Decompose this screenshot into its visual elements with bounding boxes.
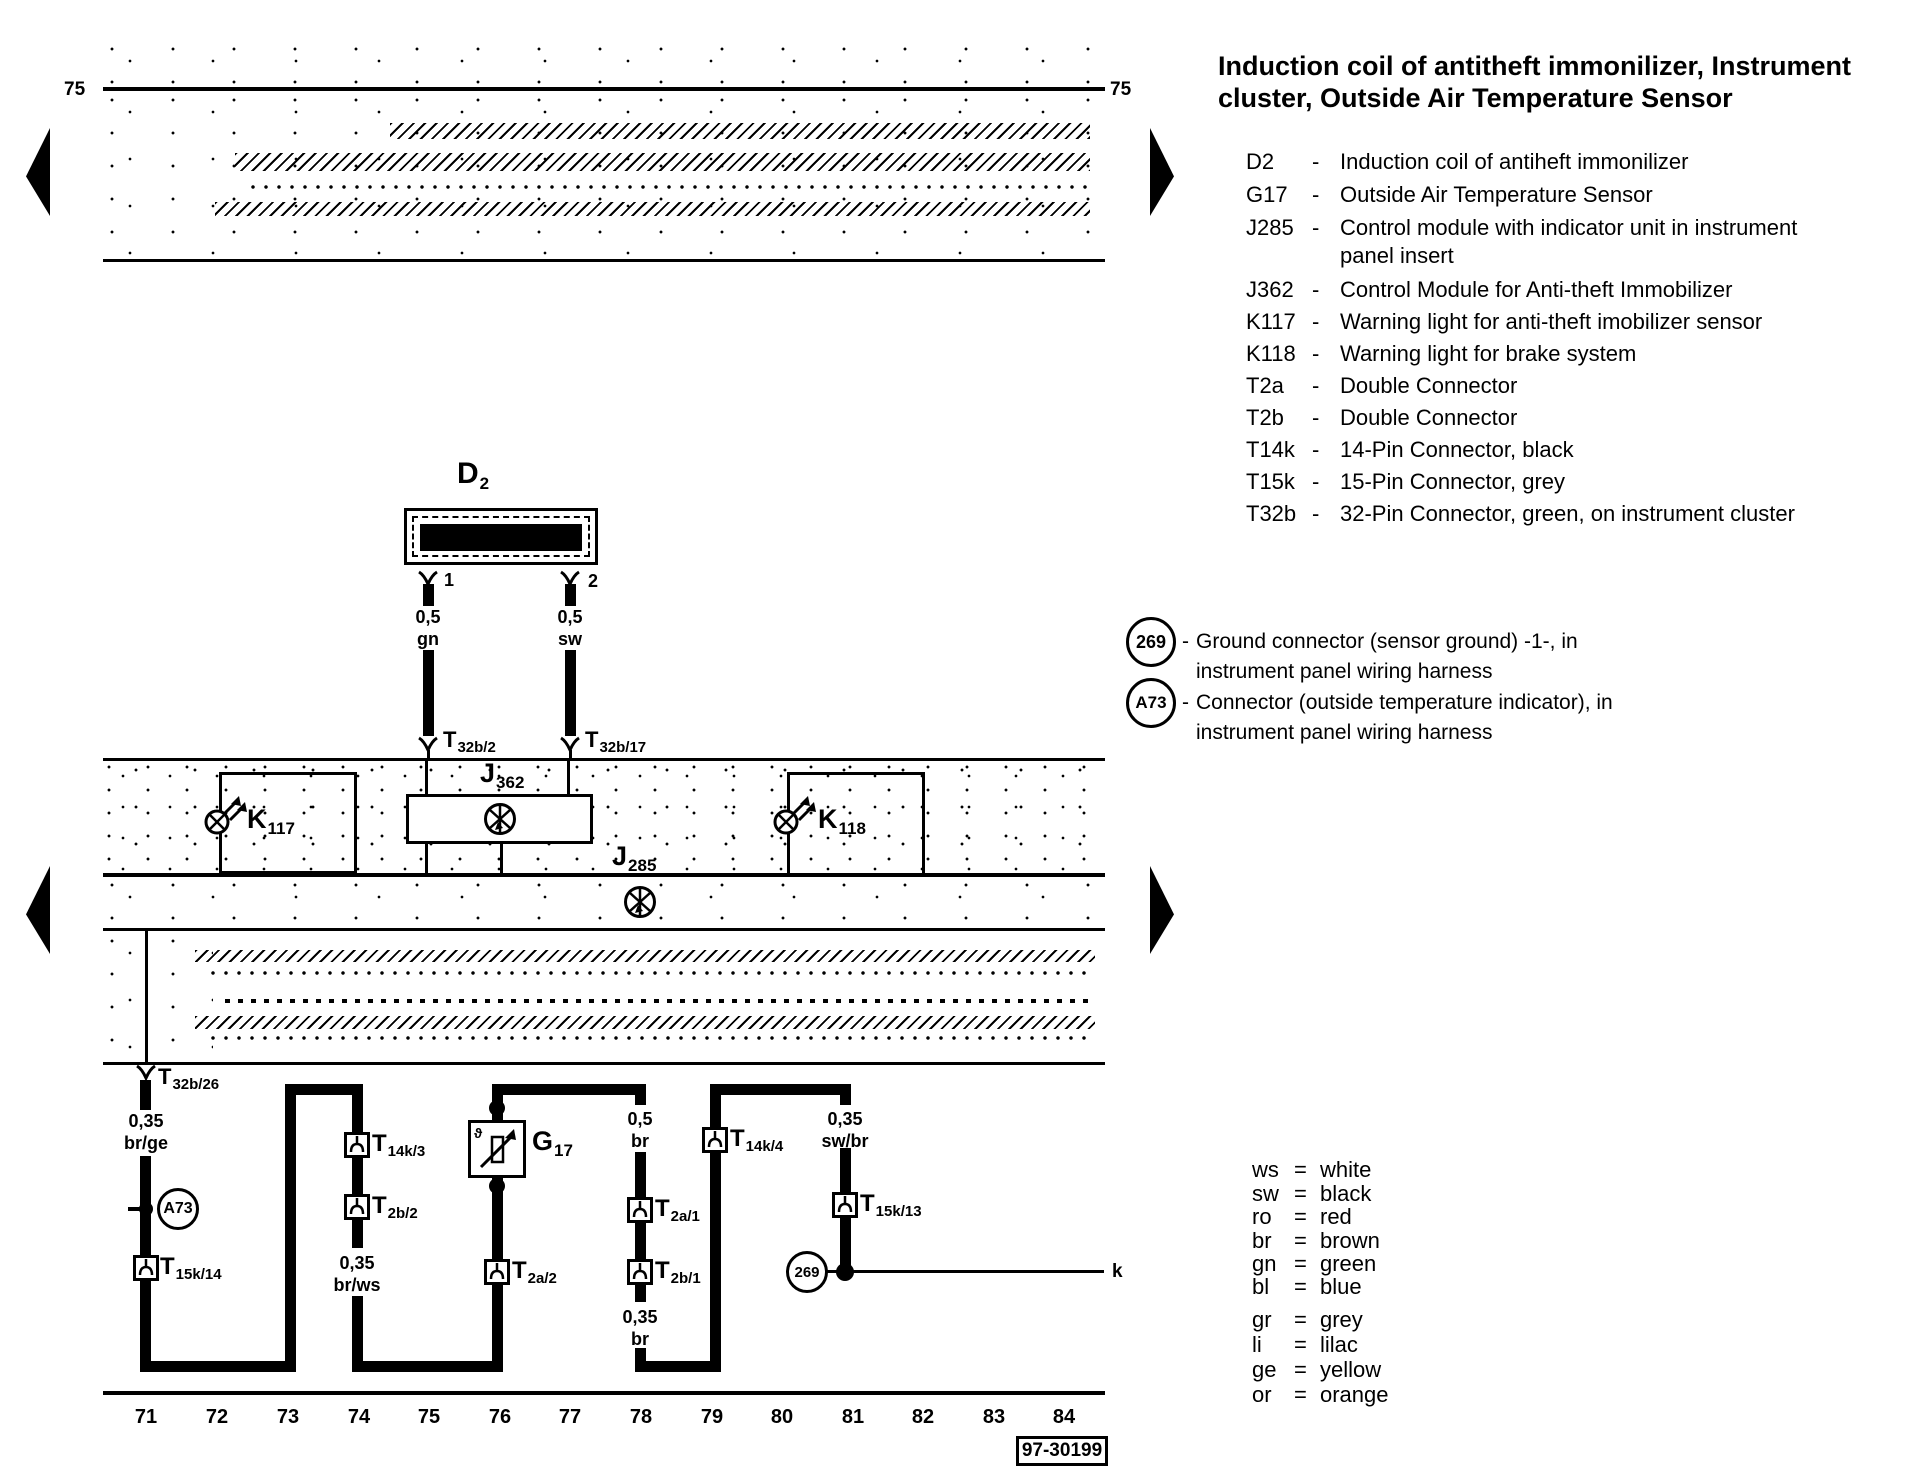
wire-spec-swbr: 0,35 sw/br <box>807 1108 883 1152</box>
pin-number-1: 1 <box>444 571 454 589</box>
connector-label-t2b1: T2b/1 <box>655 1259 701 1283</box>
page-arrow-right-middle <box>1150 866 1174 954</box>
connector-t2b2 <box>344 1194 370 1220</box>
connector-label-t2a1: T2a/1 <box>655 1197 700 1221</box>
connector-t14k3 <box>344 1132 370 1158</box>
connector-t2a1 <box>627 1197 653 1223</box>
wire-spec-br05: 0,5 br <box>602 1108 678 1152</box>
control-module-k-icon <box>622 884 658 920</box>
connector-label-t2b2: T2b/2 <box>372 1194 418 1218</box>
legend-code: T32b <box>1246 501 1312 527</box>
legend-desc: 15-Pin Connector, grey <box>1340 469 1565 494</box>
wire-end-label-k: k <box>1112 1262 1123 1281</box>
stipple-row <box>195 1016 1095 1029</box>
track-number: 75 <box>407 1406 451 1429</box>
connector-label-t2a2: T2a/2 <box>512 1259 557 1283</box>
wire-into-j362 <box>425 761 428 795</box>
connector-ref-a73: A73 <box>157 1188 199 1230</box>
color-code-or: or=orange <box>1252 1382 1389 1408</box>
connector-label-t32b17: T32b/17 <box>585 729 646 751</box>
legend-dash: - <box>1312 277 1340 303</box>
legend-item-j285: J285-Control module with indicator unit … <box>1246 215 1797 241</box>
legend-dash: - <box>1312 215 1340 241</box>
legend-code: T14k <box>1246 437 1312 463</box>
legend-dash: - <box>1312 501 1340 527</box>
legend-code: T2b <box>1246 405 1312 431</box>
wire-spec-br035: 0,35 br <box>602 1306 678 1350</box>
wire-spec-brws: 0,35 br/ws <box>319 1252 395 1296</box>
bottom-rail-line <box>103 1391 1105 1395</box>
legend-item-t32b: T32b-32-Pin Connector, green, on instrum… <box>1246 501 1795 527</box>
legend-dash: - <box>1312 469 1340 495</box>
wire-d2-pin1 <box>423 584 434 606</box>
d2-coil-bar <box>420 524 582 551</box>
plug-icon <box>347 1135 367 1155</box>
stipple-row <box>225 999 1095 1003</box>
note-dash: - <box>1182 691 1189 715</box>
cluster-band-top-line <box>103 758 1105 761</box>
wire-leg <box>352 1296 363 1372</box>
page-arrow-left-middle <box>26 866 50 954</box>
plug-icon <box>630 1200 650 1220</box>
legend-dash: - <box>1312 309 1340 335</box>
track-number: 83 <box>972 1406 1016 1429</box>
stipple-row <box>210 1035 1095 1042</box>
wire-leg <box>840 1084 851 1105</box>
plug-icon <box>136 1258 156 1278</box>
legend-desc: Double Connector <box>1340 373 1517 398</box>
stipple-above-rail <box>103 42 1105 86</box>
color-code-li: li=lilac <box>1252 1332 1358 1358</box>
wire-leg <box>635 1348 646 1372</box>
plug-icon <box>487 1262 507 1282</box>
component-label-d2: D2 <box>457 459 489 489</box>
legend-dash: - <box>1312 341 1340 367</box>
wire-bottom-bar <box>140 1361 296 1372</box>
component-label-j362: J362 <box>480 760 524 787</box>
track-number: 81 <box>831 1406 875 1429</box>
rail-label-75-left: 75 <box>64 80 85 99</box>
g17-box: ϑ <box>468 1120 526 1178</box>
legend-desc: Warning light for brake system <box>1340 341 1636 366</box>
connector-t14k4 <box>702 1127 728 1153</box>
wire-top-bar <box>492 1084 646 1095</box>
page-title-line1: Induction coil of antitheft immonilizer,… <box>1218 50 1851 82</box>
connector-label-t14k3: T14k/3 <box>372 1132 425 1156</box>
wire-leg <box>635 1084 646 1105</box>
connector-t2a2 <box>484 1259 510 1285</box>
legend-desc: 32-Pin Connector, green, on instrument c… <box>1340 501 1795 526</box>
legend-code: G17 <box>1246 182 1312 208</box>
wire-d2-pin2 <box>565 584 576 606</box>
legend-item-g17: G17-Outside Air Temperature Sensor <box>1246 182 1653 208</box>
wire-leg <box>285 1084 296 1372</box>
connector-t15k13 <box>832 1192 858 1218</box>
legend-item-t15k: T15k-15-Pin Connector, grey <box>1246 469 1565 495</box>
wire-bottom-bar <box>352 1361 503 1372</box>
wire-below-j362 <box>500 844 503 874</box>
wire-spec-sw: 0,5 sw <box>532 606 608 650</box>
junction-dot <box>489 1178 505 1194</box>
junction-dot <box>489 1100 505 1116</box>
wire-below-j362 <box>425 844 428 874</box>
doc-number-box: 97-30199 <box>1016 1436 1108 1466</box>
stipple-row <box>210 970 1095 977</box>
svg-text:ϑ: ϑ <box>474 1125 483 1141</box>
rail-label-75-right: 75 <box>1110 80 1131 99</box>
warning-lamp-icon <box>203 794 249 836</box>
note-269-line2: instrument panel wiring harness <box>1196 660 1492 684</box>
legend-code: K117 <box>1246 309 1312 335</box>
track-number: 84 <box>1042 1406 1086 1429</box>
legend-desc: 14-Pin Connector, black <box>1340 437 1574 462</box>
note-ref-a73: A73 <box>1126 678 1176 728</box>
track-number: 72 <box>195 1406 239 1429</box>
wire-brge-upper <box>140 1080 151 1110</box>
track-number: 78 <box>619 1406 663 1429</box>
legend-item-k117: K117-Warning light for anti-theft imobil… <box>1246 309 1762 335</box>
plug-icon <box>347 1197 367 1217</box>
wire-into-j362 <box>567 761 570 795</box>
note-ref-269: 269 <box>1126 617 1176 667</box>
connector-t2b1 <box>627 1259 653 1285</box>
legend-dash: - <box>1312 405 1340 431</box>
stipple-row <box>250 184 1090 191</box>
legend-item-t2a: T2a-Double Connector <box>1246 373 1517 399</box>
note-dash: - <box>1182 630 1189 654</box>
plug-icon <box>835 1195 855 1215</box>
track-number: 73 <box>266 1406 310 1429</box>
plug-icon <box>705 1130 725 1150</box>
connector-label-t32b2: T32b/2 <box>443 729 496 751</box>
connector-label-t14k4: T14k/4 <box>730 1127 783 1151</box>
wire-d2-pin1-lower <box>423 650 434 736</box>
page-title-line2: cluster, Outside Air Temperature Sensor <box>1218 82 1733 114</box>
legend-dash: - <box>1312 149 1340 175</box>
color-code-ro: ro=red <box>1252 1204 1352 1230</box>
track-number: 80 <box>760 1406 804 1429</box>
legend-desc: Double Connector <box>1340 405 1517 430</box>
ground-ref-269: 269 <box>786 1251 828 1293</box>
legend-desc: Warning light for anti-theft imobilizer … <box>1340 309 1762 334</box>
legend-code: J285 <box>1246 215 1312 241</box>
wire-d2-pin2-lower <box>565 650 576 736</box>
color-code-ge: ge=yellow <box>1252 1357 1381 1383</box>
legend-dash: - <box>1312 182 1340 208</box>
legend-desc: Control Module for Anti-theft Immobilize… <box>1340 277 1733 302</box>
pin-number-2: 2 <box>588 572 598 590</box>
legend-code: T2a <box>1246 373 1312 399</box>
wire-to-k <box>852 1270 1104 1273</box>
wire-spec-brge: 0,35 br/ge <box>108 1110 184 1154</box>
junction-dot <box>139 1202 153 1216</box>
legend-desc: Control module with indicator unit in in… <box>1340 215 1797 240</box>
stipple-row <box>235 153 1090 171</box>
track-number: 82 <box>901 1406 945 1429</box>
connector-t15k14 <box>133 1255 159 1281</box>
page-arrow-right-top <box>1150 128 1174 216</box>
note-269-line1: Ground connector (sensor ground) -1-, in <box>1196 630 1578 654</box>
wire-t32b26-thin <box>145 931 148 1062</box>
note-a73-line2: instrument panel wiring harness <box>1196 721 1492 745</box>
plug-icon <box>630 1262 650 1282</box>
color-code-bl: bl=blue <box>1252 1274 1362 1300</box>
component-label-g17: G17 <box>532 1128 573 1155</box>
j285-band-bottom-line <box>103 928 1105 931</box>
j285-band-stipple <box>103 878 1105 928</box>
control-module-k-icon <box>482 801 518 837</box>
legend-dash: - <box>1312 437 1340 463</box>
connector-label-t15k13: T15k/13 <box>860 1192 922 1216</box>
legend-desc: Outside Air Temperature Sensor <box>1340 182 1653 207</box>
wire-bottom-bar <box>635 1361 721 1372</box>
component-label-k118: K118 <box>818 806 866 833</box>
legend-code: T15k <box>1246 469 1312 495</box>
stipple-row <box>390 123 1090 139</box>
top-rail-line <box>103 87 1105 91</box>
legend-code: J362 <box>1246 277 1312 303</box>
page-arrow-left-top <box>26 128 50 216</box>
connector-label-t15k14: T15k/14 <box>160 1255 222 1279</box>
wiring-diagram-page: 75 75 D2 1 2 0,5 gn 0,5 sw T32b/2 T32b/1… <box>0 0 1932 1472</box>
component-label-j285: J285 <box>612 843 656 870</box>
connector-arrow-icon <box>135 1064 157 1080</box>
wire-top-bar <box>710 1084 851 1095</box>
legend-item-t14k: T14k-14-Pin Connector, black <box>1246 437 1574 463</box>
thermistor-icon: ϑ <box>471 1123 523 1175</box>
lower-band-bottom-line <box>103 1062 1105 1065</box>
track-number: 74 <box>337 1406 381 1429</box>
track-number: 71 <box>124 1406 168 1429</box>
legend-item-j285-wrap: panel insert <box>1340 243 1454 269</box>
note-a73-line1: Connector (outside temperature indicator… <box>1196 691 1613 715</box>
track-number: 79 <box>690 1406 734 1429</box>
legend-desc: Induction coil of antiheft immonilizer <box>1340 149 1689 174</box>
wire-spec-gn: 0,5 gn <box>390 606 466 650</box>
legend-item-k118: K118-Warning light for brake system <box>1246 341 1636 367</box>
legend-item-j362: J362-Control Module for Anti-theft Immob… <box>1246 277 1733 303</box>
warning-lamp-icon <box>772 794 818 836</box>
legend-dash: - <box>1312 373 1340 399</box>
legend-item-t2b: T2b-Double Connector <box>1246 405 1517 431</box>
color-code-ws: ws=white <box>1252 1157 1371 1183</box>
stipple-row <box>195 950 1095 962</box>
legend-item-d2: D2-Induction coil of antiheft immonilize… <box>1246 149 1689 175</box>
track-number: 76 <box>478 1406 522 1429</box>
color-code-gr: gr=grey <box>1252 1307 1363 1333</box>
top-band-stipple <box>103 93 1105 257</box>
track-number: 77 <box>548 1406 592 1429</box>
legend-code: K118 <box>1246 341 1312 367</box>
legend-code: D2 <box>1246 149 1312 175</box>
stipple-row <box>215 202 1090 216</box>
component-label-k117: K117 <box>247 806 295 833</box>
connector-label-t32b26: T32b/26 <box>158 1066 219 1088</box>
top-band-bottom-line <box>103 259 1105 262</box>
wire-leg <box>352 1084 363 1248</box>
